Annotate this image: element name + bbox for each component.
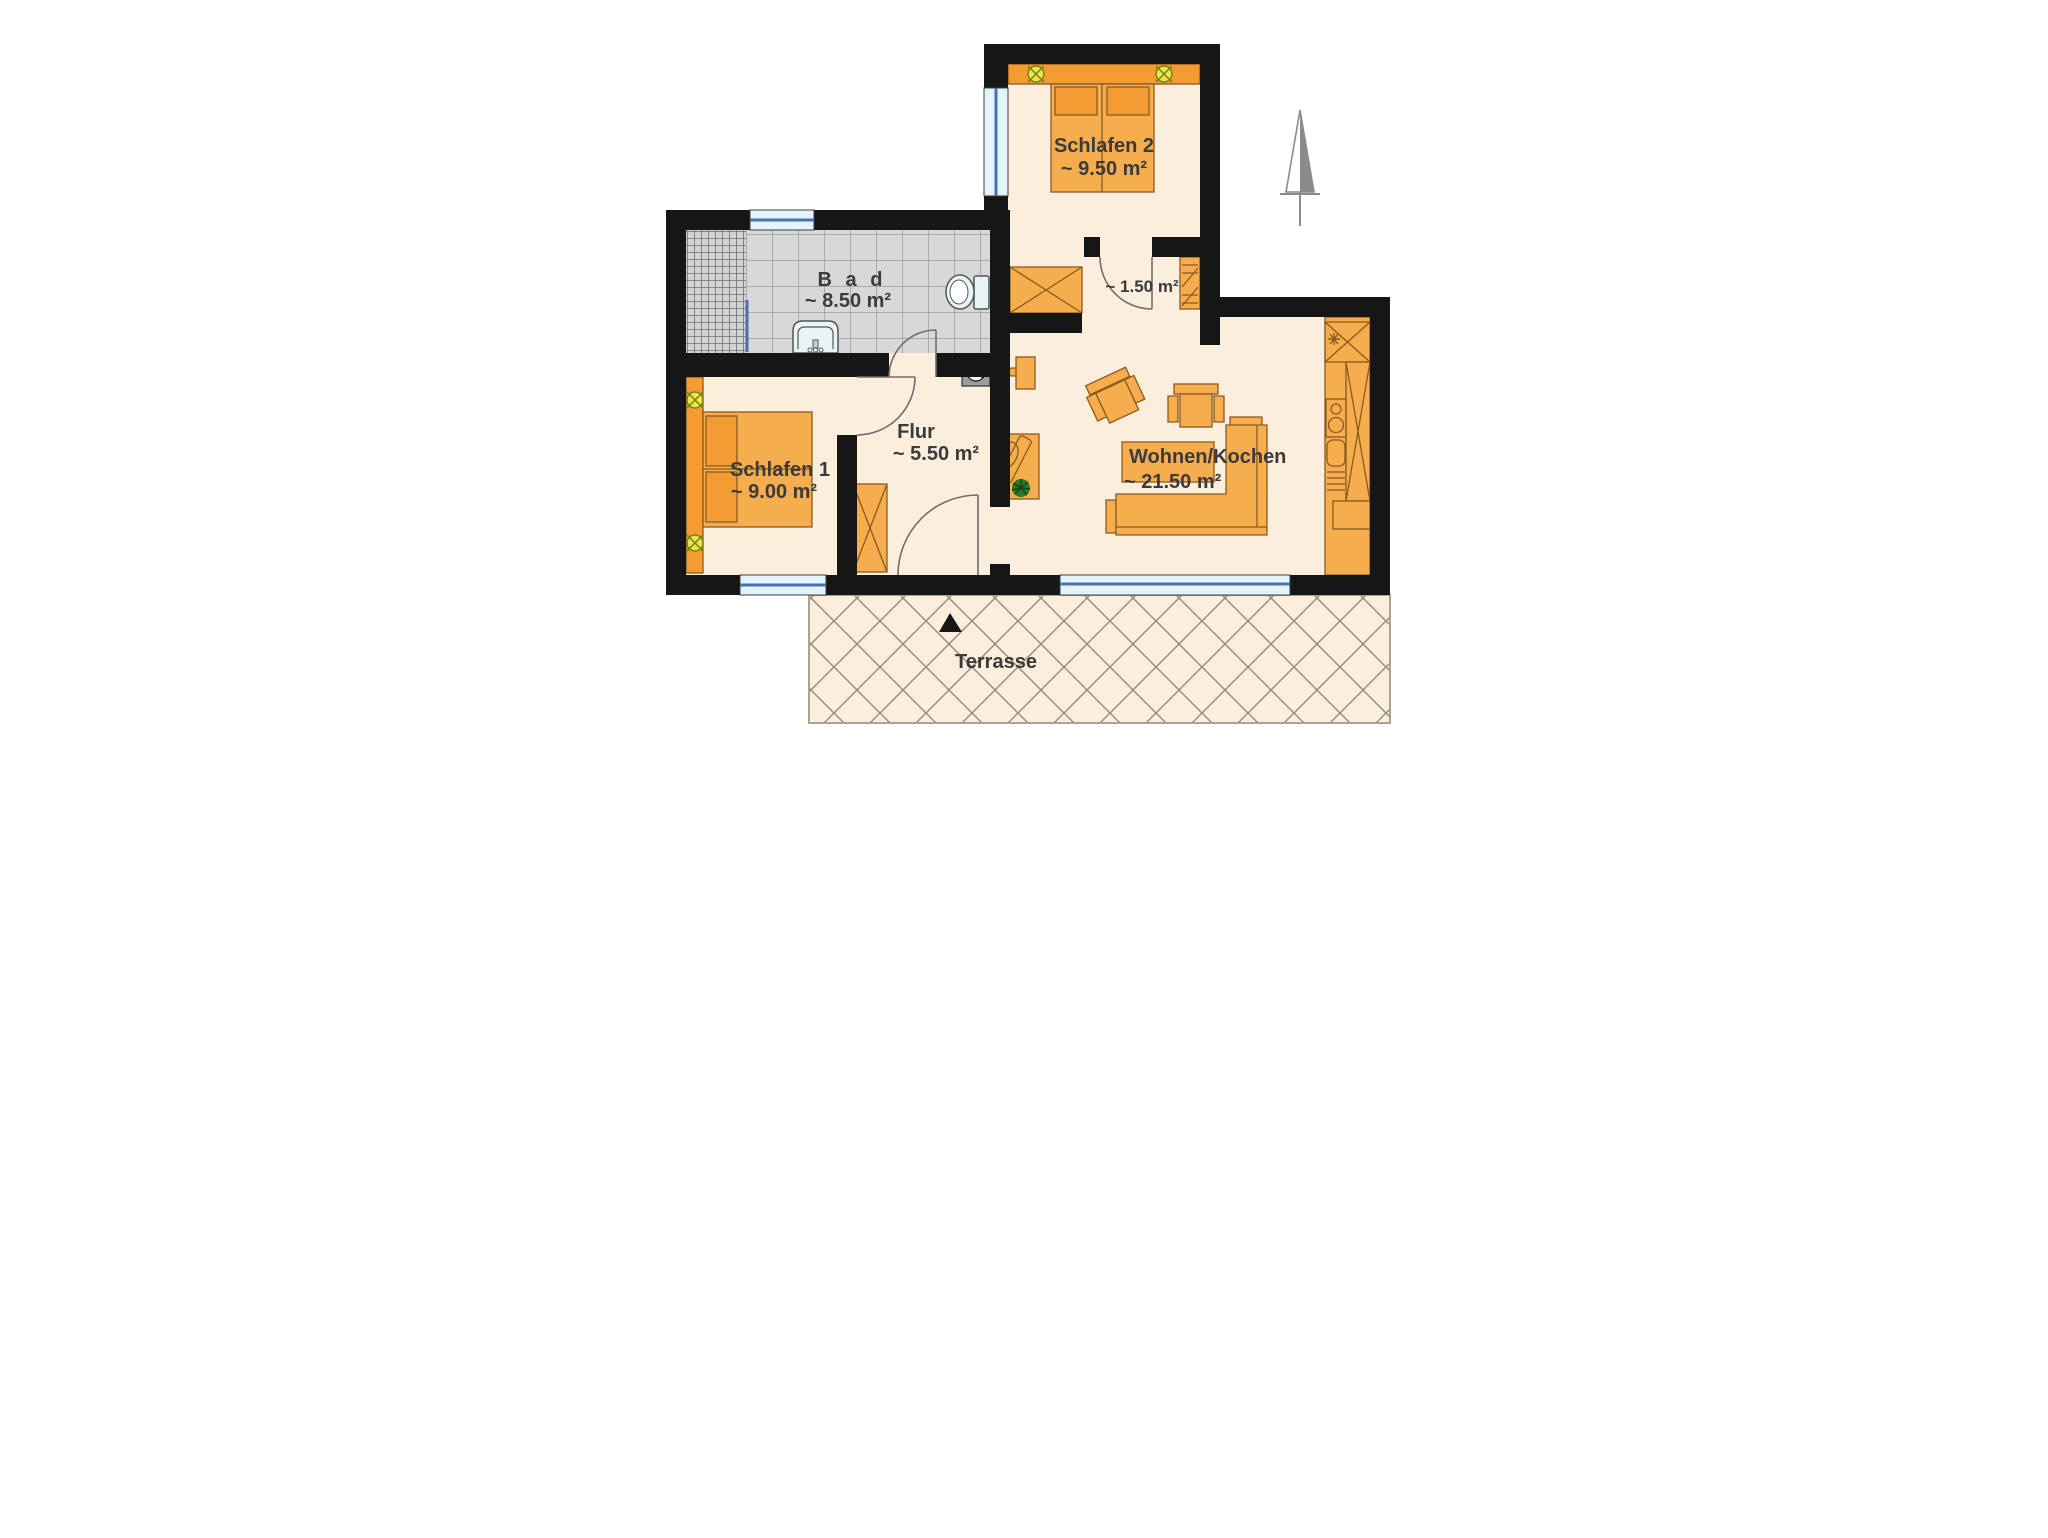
bad-door-threshold [889, 353, 936, 377]
flur-wohnen-passage-floor [990, 507, 1010, 564]
dining-chair [1168, 384, 1224, 427]
washbasin-icon [793, 321, 838, 353]
pillow [1055, 87, 1097, 115]
kitchen-sink-icon [1327, 440, 1345, 466]
cooktop-icon [1326, 399, 1346, 437]
bad-name: B a d [818, 269, 887, 291]
pillow [1107, 87, 1149, 115]
toilet-icon [946, 275, 989, 309]
terrasse-label: Terrasse [955, 651, 1037, 673]
flur-name: Flur [897, 421, 935, 443]
ceiling-lamp-icon [1156, 66, 1172, 82]
plant-icon [1012, 479, 1030, 497]
vestibule-area: ~ 1.50 m² [1105, 277, 1179, 296]
shower-area [686, 230, 746, 353]
fridge-icon [1325, 322, 1370, 362]
window-schlafen2 [984, 88, 1008, 196]
schlafen2-name: Schlafen 2 [1054, 135, 1154, 157]
closet-icon [1010, 267, 1082, 313]
flur-area: ~ 5.50 m² [893, 443, 980, 465]
schlafen1-door-threshold [837, 377, 857, 435]
north-arrow-icon [1280, 110, 1320, 226]
tall-cabinet [1346, 362, 1370, 501]
terrasse-paving [809, 595, 1390, 723]
bad-area: ~ 8.50 m² [805, 290, 892, 312]
schlafen2-area: ~ 9.50 m² [1061, 158, 1148, 180]
schlafen1-name: Schlafen 1 [730, 459, 830, 481]
schlafen1-area: ~ 9.00 m² [731, 481, 818, 503]
window-terrace-sliding-door [1060, 575, 1290, 595]
wohnen-name: Wohnen/Kochen [1129, 446, 1286, 468]
terrasse: Terrasse [809, 595, 1390, 723]
window-schlafen1 [740, 575, 826, 595]
floor-plan-drawing: Terrasse [512, 0, 1536, 769]
ceiling-lamp-icon [1028, 66, 1044, 82]
kitchen-counter-end [1333, 501, 1370, 529]
wardrobe-icon [853, 484, 887, 572]
ceiling-lamp-icon [687, 535, 703, 551]
shelf-rack-icon [1180, 257, 1200, 309]
floor-plan-page: Terrasse [512, 0, 1536, 769]
kitchen-unit [1325, 317, 1370, 575]
window-bad [750, 210, 814, 230]
wohnen-area: ~ 21.50 m² [1124, 471, 1222, 493]
ceiling-lamp-icon [687, 392, 703, 408]
freezer-snowflake-icon [1328, 333, 1340, 345]
